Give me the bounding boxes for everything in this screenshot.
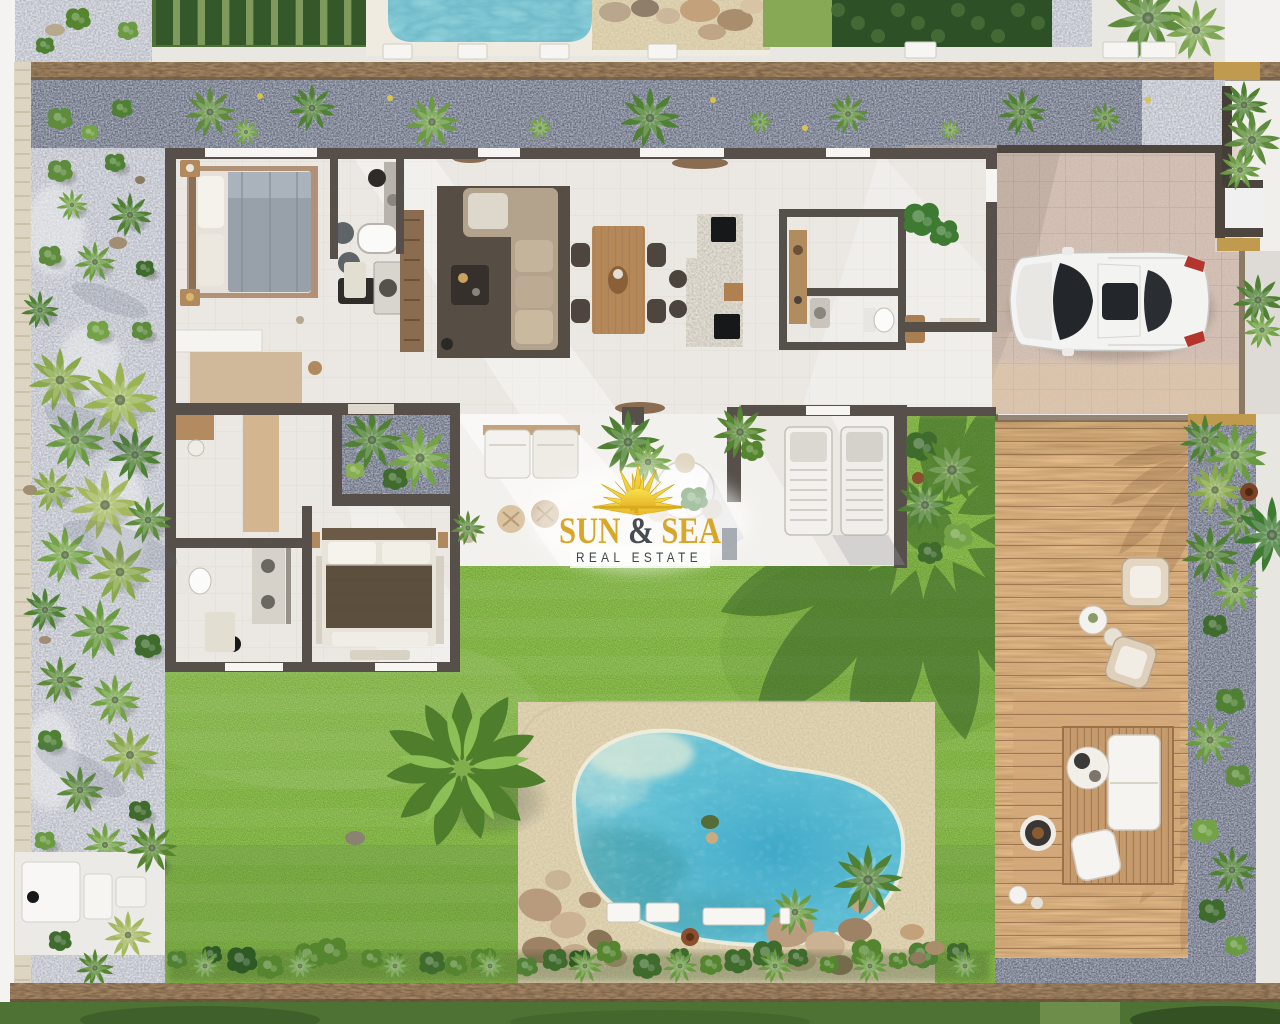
svg-text:REAL ESTATE: REAL ESTATE (576, 550, 702, 565)
svg-text:SUN & SEA: SUN & SEA (559, 511, 721, 552)
